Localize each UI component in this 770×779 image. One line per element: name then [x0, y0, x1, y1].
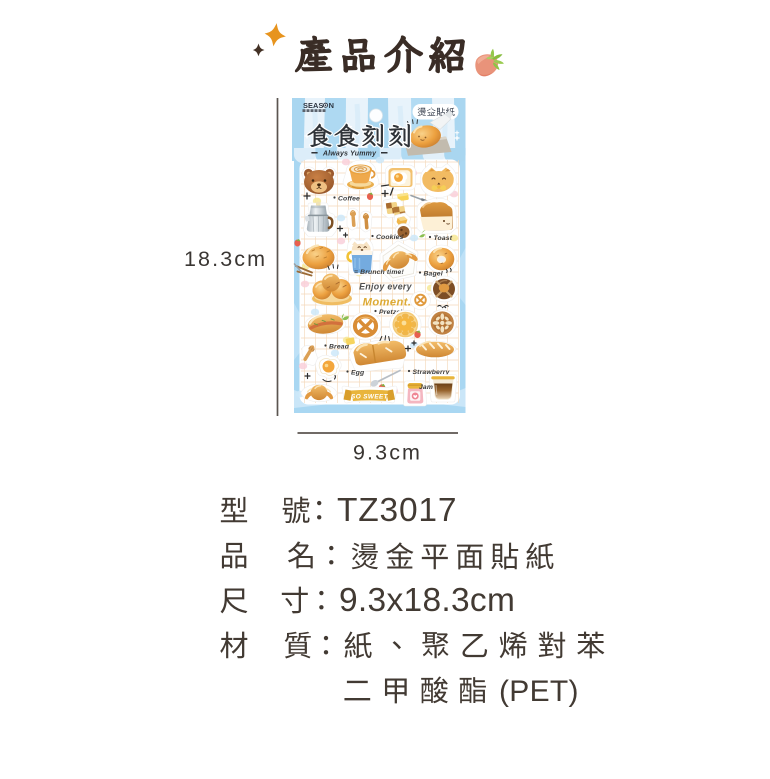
svg-text:SO SWEET: SO SWEET — [351, 393, 389, 400]
svg-text:Moment.: Moment. — [363, 297, 412, 309]
svg-text:Toast: Toast — [434, 235, 453, 242]
svg-text:Jam: Jam — [419, 384, 433, 391]
svg-text:Bread: Bread — [329, 344, 350, 351]
svg-text:9.3cm: 9.3cm — [353, 441, 422, 465]
svg-text:= Brunch time!: = Brunch time! — [354, 269, 404, 276]
svg-text:(PET): (PET) — [499, 675, 579, 708]
svg-text:Enjoy every: Enjoy every — [359, 282, 412, 292]
svg-text:SEAS: SEAS — [303, 101, 324, 110]
svg-text:Egg: Egg — [351, 369, 365, 376]
svg-text:N: N — [329, 101, 334, 110]
svg-text:TZ3017: TZ3017 — [337, 492, 457, 529]
svg-text:9.3x18.3cm: 9.3x18.3cm — [339, 582, 515, 619]
svg-text:18.3cm: 18.3cm — [184, 247, 267, 271]
svg-text:Coffee: Coffee — [338, 196, 360, 203]
svg-text:Cookies: Cookies — [376, 234, 404, 241]
svg-text:Always Yummy: Always Yummy — [322, 151, 377, 158]
